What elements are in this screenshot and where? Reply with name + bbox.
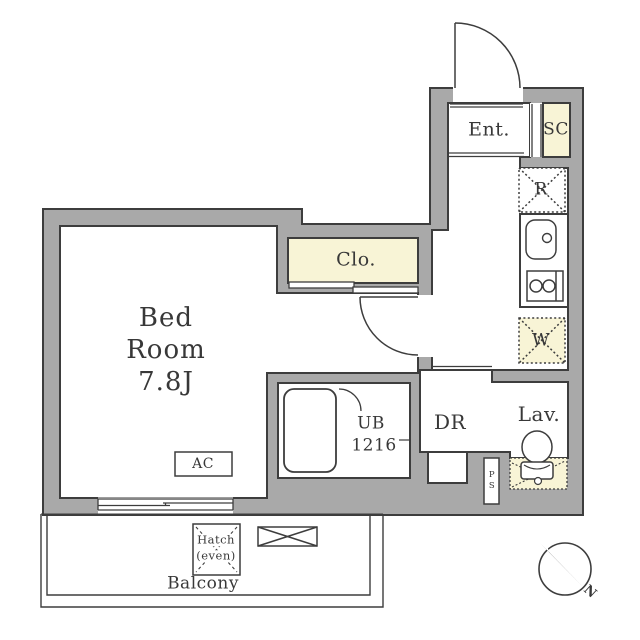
vent-x-box [258, 527, 317, 546]
ac-label: AC [192, 457, 214, 471]
washer-label: W [532, 333, 550, 350]
bathtub [284, 389, 336, 472]
closet-slider-right [353, 287, 418, 293]
pipe-space-label: PS [487, 470, 496, 492]
shoe-closet-label: SC [543, 122, 569, 139]
unit-bath-label-line1: UB [357, 416, 385, 433]
balcony-label: Balcony [167, 576, 239, 593]
entrance-door-icon [455, 23, 520, 88]
faucet-icon [543, 234, 552, 243]
floorplan-drawing [0, 0, 640, 640]
dressing-room-label: DR [434, 412, 466, 432]
lavatory-label: Lav. [518, 404, 561, 424]
closet-slider-left [289, 282, 354, 288]
entrance-label: Ent. [468, 121, 510, 140]
entrance-door-opening [453, 86, 523, 104]
bedroom-window-slider [98, 498, 233, 514]
bedroom-label-line1: Bed [139, 305, 193, 331]
unit-bath-label-line2: 1216 [351, 438, 396, 455]
hatch-label-line1: Hatch [196, 534, 236, 546]
closet-label: Clo. [336, 251, 376, 270]
compass-icon [539, 543, 591, 595]
hatch-label-line2: (even) [195, 550, 237, 562]
toilet-icon [521, 431, 553, 485]
bedroom-label-line2: Room [126, 337, 206, 363]
bedroom-door-opening [417, 295, 433, 357]
refrigerator-label: R [534, 182, 547, 199]
floorplan-canvas: Ent. SC R W Clo. Bed Room 7.8J UB 1216 D… [0, 0, 640, 640]
utility-box [428, 452, 467, 483]
bedroom-label-line3: 7.8J [138, 369, 194, 395]
